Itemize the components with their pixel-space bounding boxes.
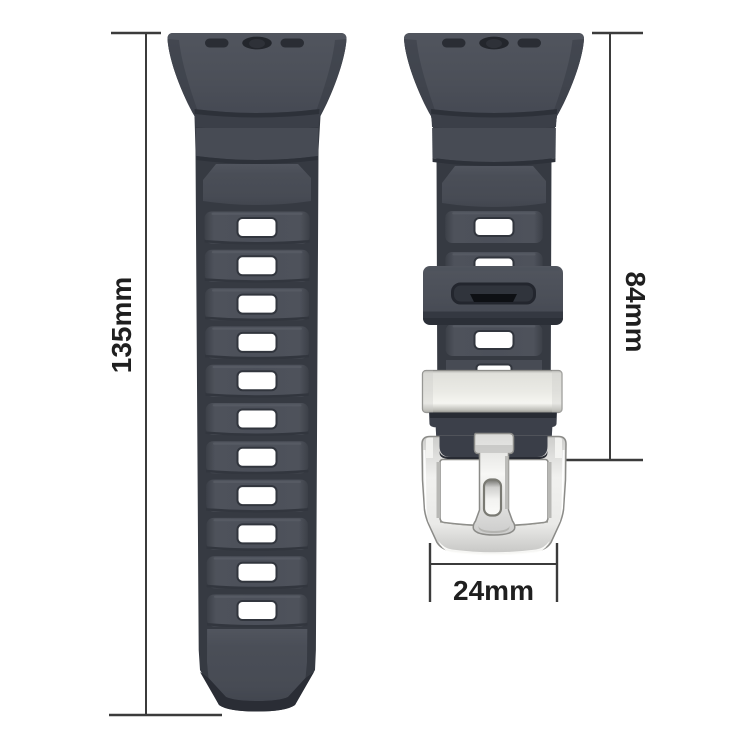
svg-text:24mm: 24mm [453, 575, 534, 606]
svg-text:135mm: 135mm [106, 277, 137, 374]
svg-text:84mm: 84mm [620, 272, 651, 353]
